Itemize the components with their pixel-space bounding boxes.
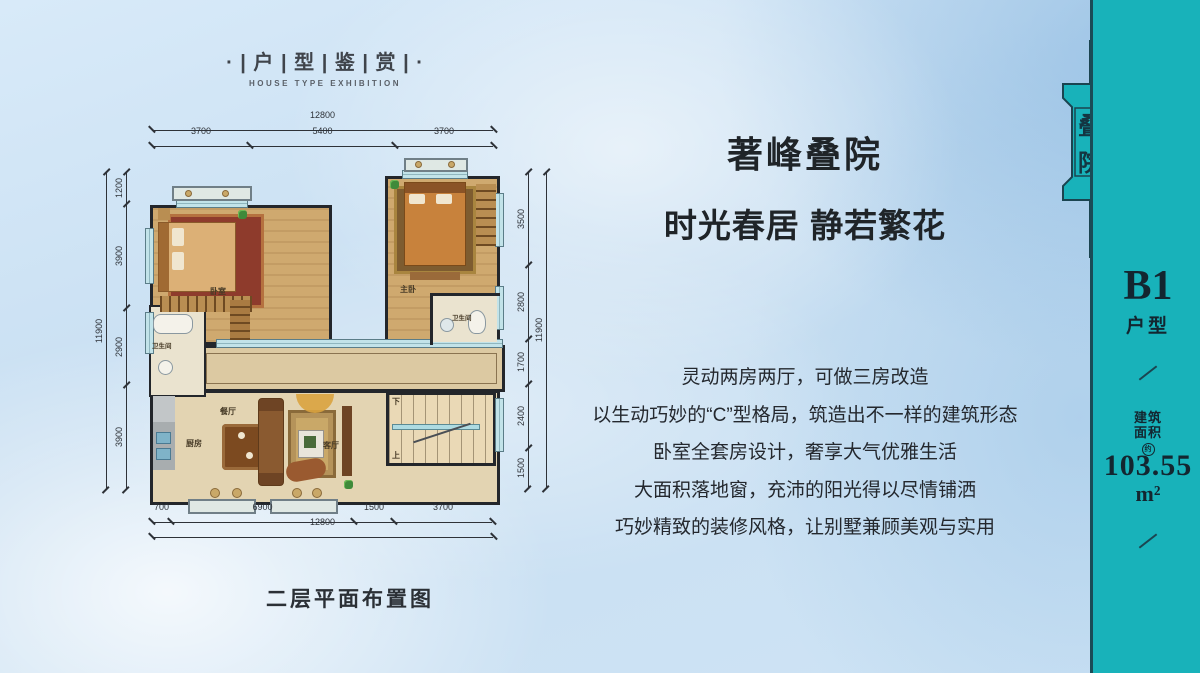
dim-label: 1500 <box>354 502 394 512</box>
dim-label: 3700 <box>394 502 492 512</box>
dim-label: 6900 <box>171 502 354 512</box>
plant-icon <box>390 180 399 189</box>
dim-label: 1500 <box>516 458 526 478</box>
section-subtitle: HOUSE TYPE EXHIBITION <box>225 79 425 88</box>
bay-decor <box>185 190 192 197</box>
dim-label: 1700 <box>516 351 526 371</box>
unit-code-label: 户型 <box>1093 311 1200 338</box>
room-label-living: 客厅 <box>323 440 339 451</box>
dim-label: 12800 <box>152 517 493 527</box>
dim-label: 3700 <box>395 126 493 136</box>
hero-line: 卧室全套房设计，奢享大气优雅生活 <box>560 434 1050 472</box>
window <box>495 193 504 247</box>
room-label-bath-master: 卫生间 <box>452 312 472 322</box>
room-label-dining: 餐厅 <box>220 406 236 417</box>
dim-label: 12800 <box>152 110 493 120</box>
bed-pillow <box>409 194 425 204</box>
section-header: · | 户 | 型 | 鉴 | 赏 | · HOUSE TYPE EXHIBIT… <box>225 46 425 88</box>
bed-pillow <box>172 228 184 246</box>
room-label-kitchen: 厨房 <box>186 438 202 449</box>
stool <box>232 488 242 498</box>
divider-slash-icon <box>1139 365 1158 380</box>
unit-code: B1 <box>1093 262 1200 310</box>
dim-label: 2400 <box>516 406 526 426</box>
room-label-bath-left: 卫生间 <box>152 340 172 350</box>
plan-caption: 二层平面布置图 <box>200 583 500 613</box>
dim-bottom-total: 12800 <box>152 527 493 537</box>
divider-slash-icon <box>1139 533 1158 548</box>
dim-label: 2900 <box>114 336 124 356</box>
area-label: 建筑 面积 <box>1093 410 1200 440</box>
room-label-master: 主卧 <box>400 284 416 295</box>
kitchen-sink <box>156 432 171 444</box>
bedroom-bed <box>158 222 236 292</box>
window <box>495 398 504 452</box>
tv-cabinet <box>342 406 352 476</box>
area-value: 103.55 <box>1093 449 1200 483</box>
table-plate <box>246 452 253 459</box>
stool <box>312 488 322 498</box>
bay-decor <box>222 190 229 197</box>
bed-bench <box>410 272 460 280</box>
sofa <box>258 398 284 486</box>
terrace-strip <box>198 345 505 392</box>
hero-paragraph: 灵动两房两厅，可做三房改造 以生动巧妙的“C”型格局，筑造出不一样的建筑形态 卧… <box>560 359 1050 547</box>
bed-pillow <box>172 252 184 270</box>
bay-window <box>404 158 468 172</box>
hero-line: 大面积落地窗，充沛的阳光得以尽情铺洒 <box>560 472 1050 510</box>
stool <box>292 488 302 498</box>
dim-label: 2800 <box>516 292 526 312</box>
kitchen-appliance <box>153 396 175 422</box>
hero-line: 灵动两房两厅，可做三房改造 <box>560 359 1050 397</box>
room-label-bedroom: 卧室 <box>210 286 226 297</box>
dim-label: 11900 <box>534 318 544 342</box>
dim-label: 3900 <box>114 427 124 447</box>
hero-line: 以生动巧妙的“C”型格局，筑造出不一样的建筑形态 <box>560 397 1050 435</box>
dim-label: 3700 <box>152 126 250 136</box>
bay-window <box>172 186 252 201</box>
hero-line: 巧妙精致的装修风格，让别墅兼顾美观与实用 <box>560 509 1050 547</box>
plant-icon <box>238 210 247 219</box>
kitchen-sink <box>156 448 171 460</box>
dim-label: 1200 <box>114 178 124 198</box>
dim-top-segments: 3700 5400 3700 <box>152 136 493 146</box>
hero-text-block: 著峰叠院 时光春居 静若繁花 灵动两房两厅，可做三房改造 以生动巧妙的“C”型格… <box>560 126 1050 547</box>
hero-title-line2: 时光春居 静若繁花 <box>560 199 1050 247</box>
dim-label: 5400 <box>250 126 395 136</box>
washbasin <box>158 360 173 375</box>
bathtub <box>153 314 193 334</box>
section-title: · | 户 | 型 | 鉴 | 赏 | · <box>225 46 425 75</box>
nightstand <box>158 208 170 220</box>
dresser <box>476 184 496 246</box>
cabinet <box>230 300 250 340</box>
bed-pillow <box>436 194 452 204</box>
bay-decor <box>448 161 455 168</box>
coffee-table-decor <box>304 436 316 448</box>
window <box>145 228 154 284</box>
hero-title-line1: 著峰叠院 <box>560 126 1050 178</box>
page-background: · | 户 | 型 | 鉴 | 赏 | · HOUSE TYPE EXHIBIT… <box>0 0 1200 673</box>
area-unit: m² <box>1093 481 1200 507</box>
stair-label-up: 上 <box>392 450 400 461</box>
dim-left-segments: 1200 3900 2900 3900 <box>126 172 136 489</box>
dim-label: 11900 <box>94 318 104 342</box>
stool <box>210 488 220 498</box>
bay-decor <box>415 161 422 168</box>
plant-icon <box>344 480 353 489</box>
dim-label: 3500 <box>516 208 526 228</box>
sidebar-panel: B1 户型 建筑 面积 约 103.55 m² <box>1090 0 1200 673</box>
dim-label: 3900 <box>114 246 124 266</box>
area-label-line: 建筑 <box>1093 410 1200 425</box>
stair-label-down: 下 <box>392 396 400 407</box>
dim-label: 700 <box>152 502 171 512</box>
dim-right-total: 11900 <box>546 172 556 488</box>
table-plate <box>238 432 245 439</box>
